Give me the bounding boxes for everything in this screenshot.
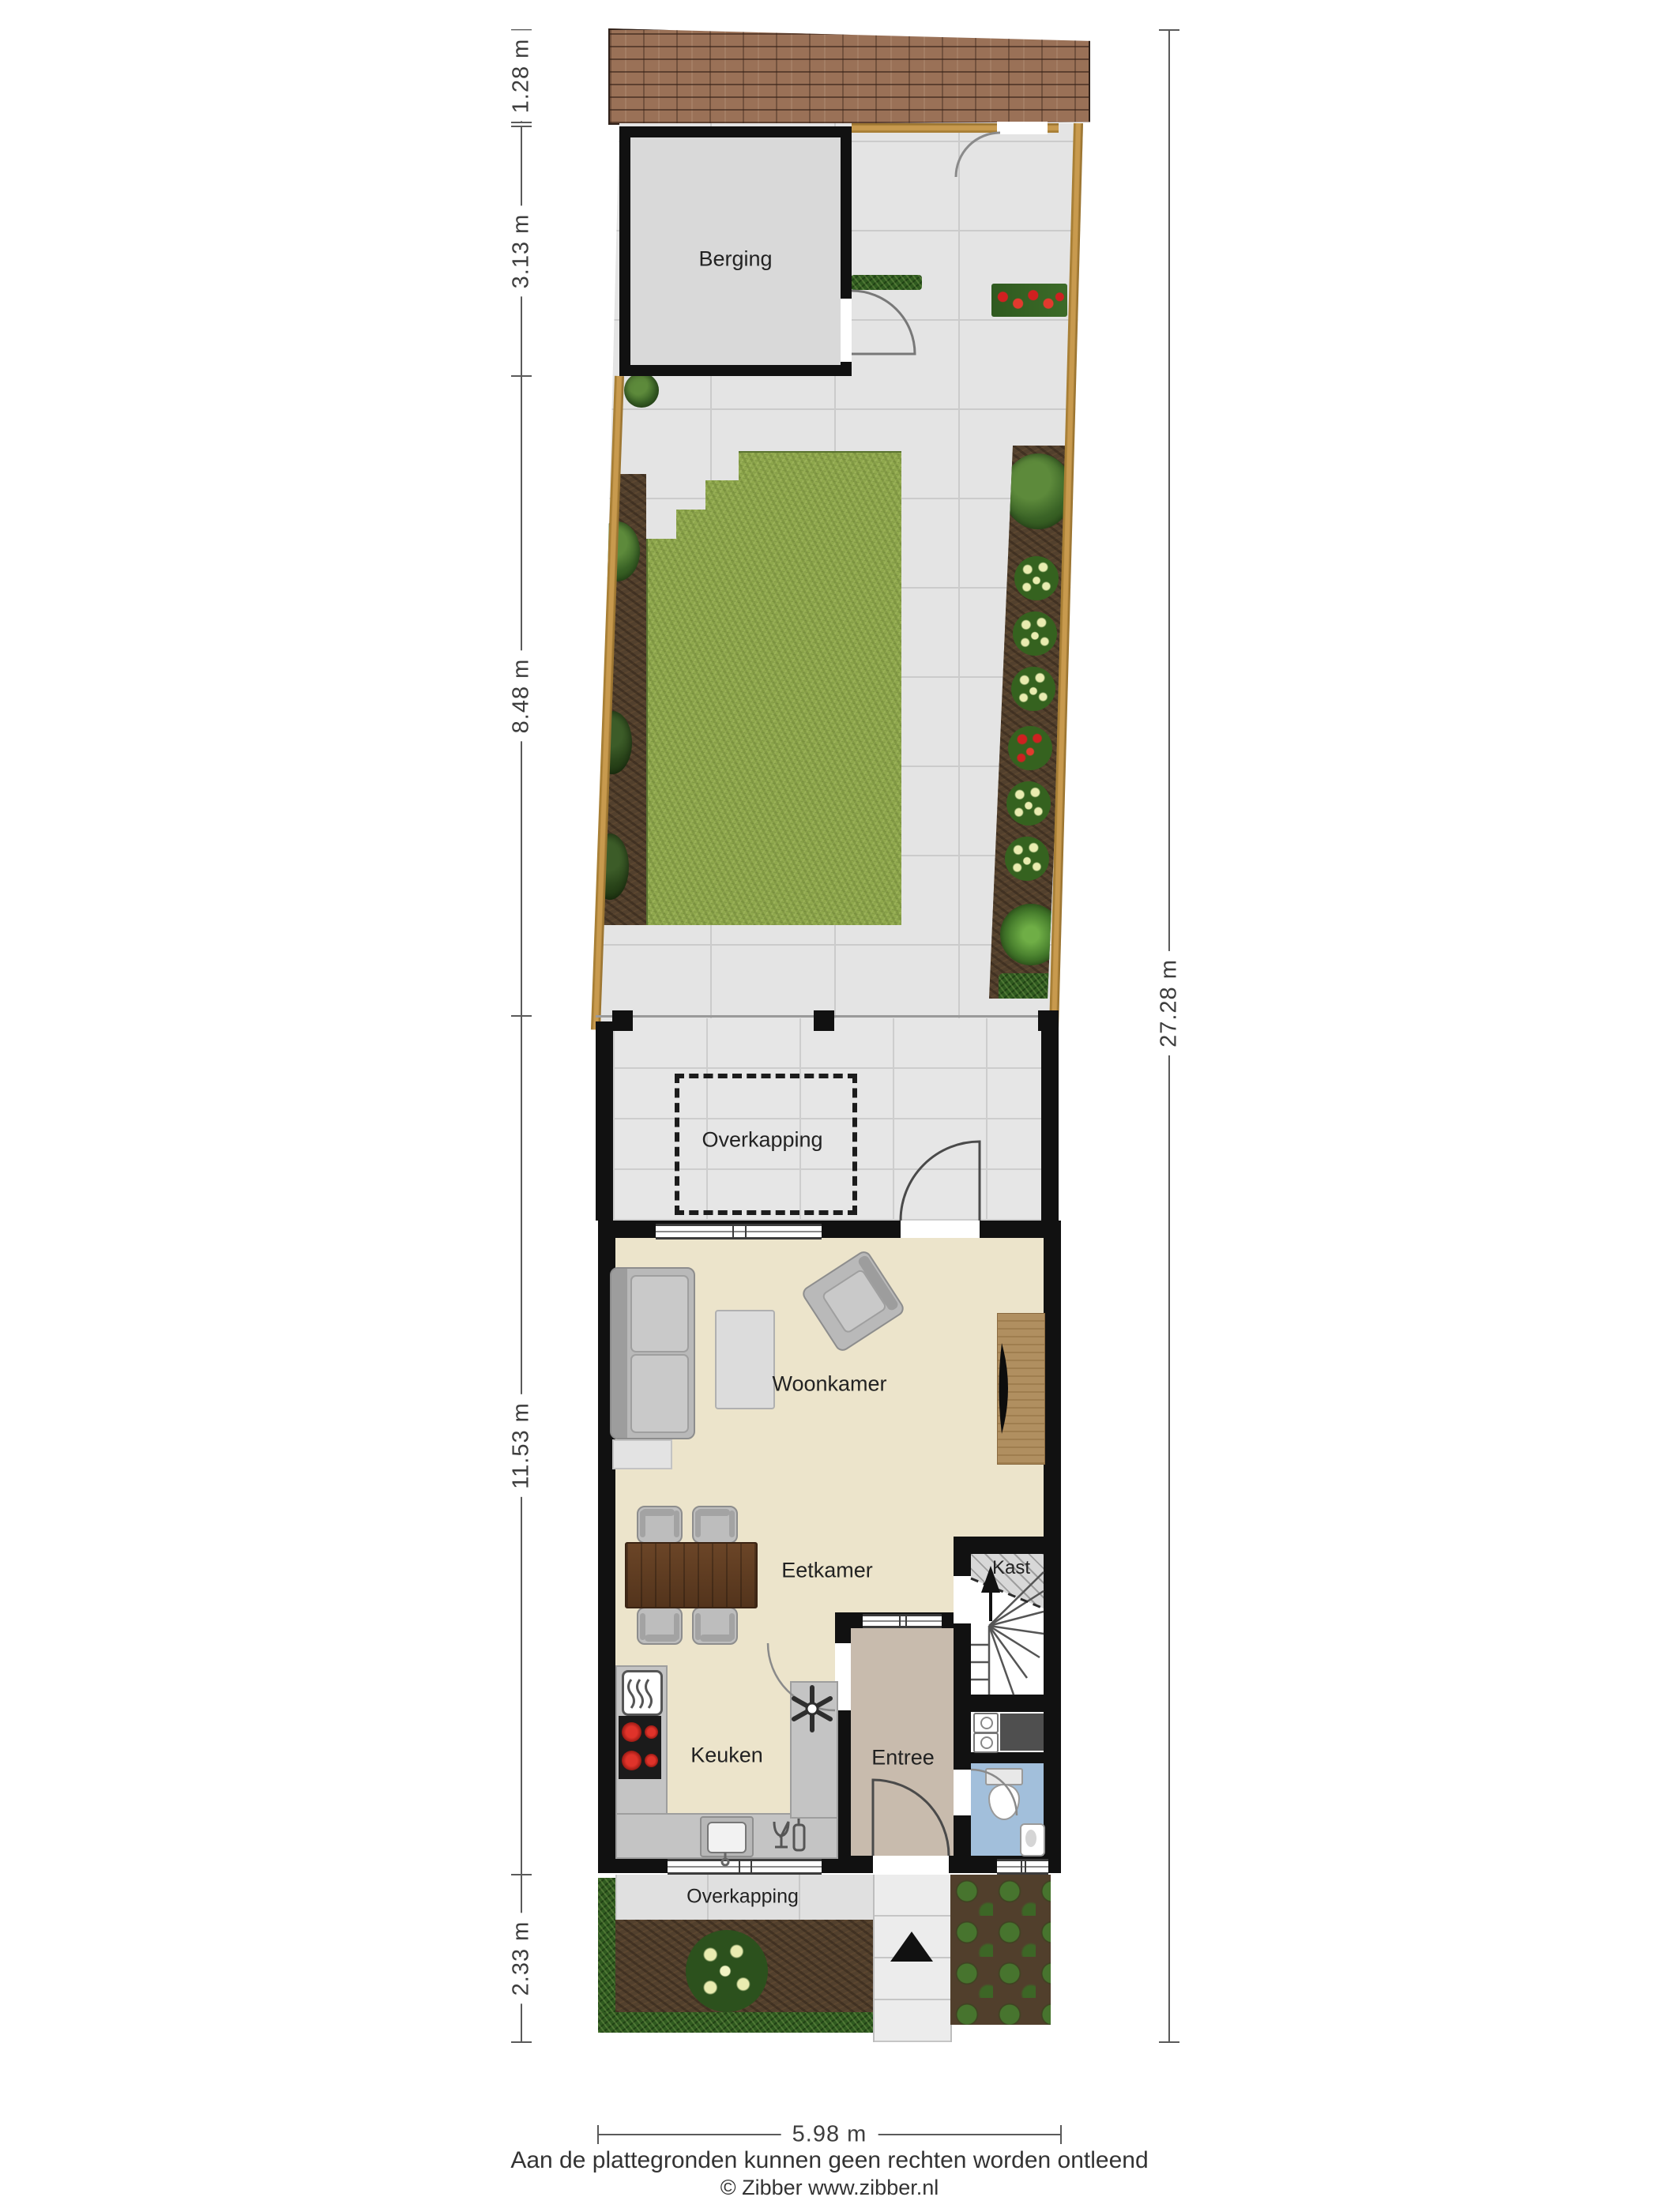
dining-chair xyxy=(637,1506,683,1544)
rose-clump xyxy=(1008,726,1052,770)
under-stairs-wall xyxy=(954,1695,1061,1712)
red-flower-planter xyxy=(991,284,1067,317)
stairs-opening xyxy=(954,1576,971,1623)
hedge-strip xyxy=(851,275,922,290)
dimension-label-width: 5.98 m xyxy=(781,2120,878,2150)
dining-table xyxy=(625,1542,758,1608)
dimension-label-house: 11.53 m xyxy=(504,1394,540,1497)
toilet-door-opening xyxy=(954,1770,971,1815)
shrub xyxy=(592,711,632,774)
dimension-label-roof: 1.28 m xyxy=(504,31,540,122)
dimension-label-front-garden: 2.33 m xyxy=(504,1913,540,2004)
room-label-keuken: Keuken xyxy=(690,1744,763,1768)
room-label-berging: Berging xyxy=(698,247,772,272)
flower-clump xyxy=(1014,556,1059,600)
front-flower-bush xyxy=(686,1930,768,2012)
side-table xyxy=(612,1439,672,1469)
flower-clump xyxy=(1005,837,1049,881)
room-label-kast: Kast xyxy=(992,1557,1030,1579)
dining-chair xyxy=(637,1607,683,1645)
kitchen-counter-column xyxy=(790,1681,838,1819)
meter-icon xyxy=(973,1732,999,1753)
utility-unit xyxy=(1000,1714,1044,1751)
north-arrow-icon xyxy=(890,1932,933,1962)
flower-clump xyxy=(1006,781,1051,826)
flower-clump xyxy=(1011,667,1055,711)
berging-door-opening xyxy=(841,299,852,362)
dimension-tick xyxy=(1159,29,1179,31)
front-door-opening xyxy=(873,1856,949,1873)
overkapping-left-wall xyxy=(596,1021,613,1221)
small-bush xyxy=(624,373,659,408)
overkapping-right-wall xyxy=(1041,1021,1059,1221)
sofa xyxy=(610,1267,695,1439)
berging-room: Berging xyxy=(619,126,852,376)
roof xyxy=(608,28,1090,125)
oven-icon xyxy=(622,1670,663,1716)
dimension-label-berging: 3.13 m xyxy=(504,206,540,297)
dimension-tick xyxy=(1060,2125,1062,2144)
dimension-label-garden: 8.48 m xyxy=(504,651,540,742)
dimension-tick xyxy=(597,2125,599,2144)
front-garden-right-plants xyxy=(950,1875,1051,2025)
footer-copyright: © Zibber www.zibber.nl xyxy=(0,2176,1659,2200)
room-label-woonkamer: Woonkamer xyxy=(772,1372,886,1397)
dimension-tick xyxy=(511,2041,532,2043)
entree-interior-window xyxy=(863,1614,942,1628)
entree-floor xyxy=(851,1628,954,1856)
sink-icon xyxy=(700,1816,754,1857)
floorplan-canvas: 27.28 m 1.28 m 3.13 m 8.48 m 11.53 m 2.3… xyxy=(0,0,1659,2212)
toilet-tank xyxy=(985,1768,1023,1785)
rear-door-opening xyxy=(901,1221,980,1238)
front-hedge-bottom xyxy=(598,2012,873,2033)
room-label-eetkamer: Eetkamer xyxy=(781,1559,873,1583)
dining-chair xyxy=(692,1607,738,1645)
tv-cabinet xyxy=(997,1313,1045,1465)
front-hedge-left xyxy=(598,1878,615,2033)
washbasin xyxy=(1020,1823,1045,1856)
gate-opening xyxy=(997,122,1048,134)
dimension-tick xyxy=(1159,2041,1179,2043)
overkapping-post xyxy=(814,1010,834,1031)
dimension-tick xyxy=(511,122,532,123)
coffee-table xyxy=(715,1310,775,1409)
room-label-overkapping-front: Overkapping xyxy=(687,1886,799,1909)
toilet-window xyxy=(997,1859,1048,1875)
meter-icon xyxy=(973,1713,999,1733)
footer-disclaimer: Aan de plattegronden kunnen geen rechten… xyxy=(0,2147,1659,2174)
room-label-overkapping-rear: Overkapping xyxy=(702,1128,822,1153)
back-garden: Berging xyxy=(586,118,1108,1035)
flower-clump xyxy=(1013,611,1057,656)
meter-toilet-wall xyxy=(954,1752,1061,1763)
rear-window xyxy=(656,1224,822,1240)
cooktop-icon xyxy=(619,1716,661,1779)
dimension-label-total: 27.28 m xyxy=(1152,951,1187,1055)
dining-chair xyxy=(692,1506,738,1544)
washbasin-bowl xyxy=(1025,1830,1036,1847)
dimension-tick xyxy=(511,126,532,127)
room-label-entree: Entree xyxy=(871,1746,935,1770)
lawn xyxy=(646,451,905,928)
kitchen-window xyxy=(668,1859,822,1875)
overkapping-post xyxy=(612,1010,633,1031)
